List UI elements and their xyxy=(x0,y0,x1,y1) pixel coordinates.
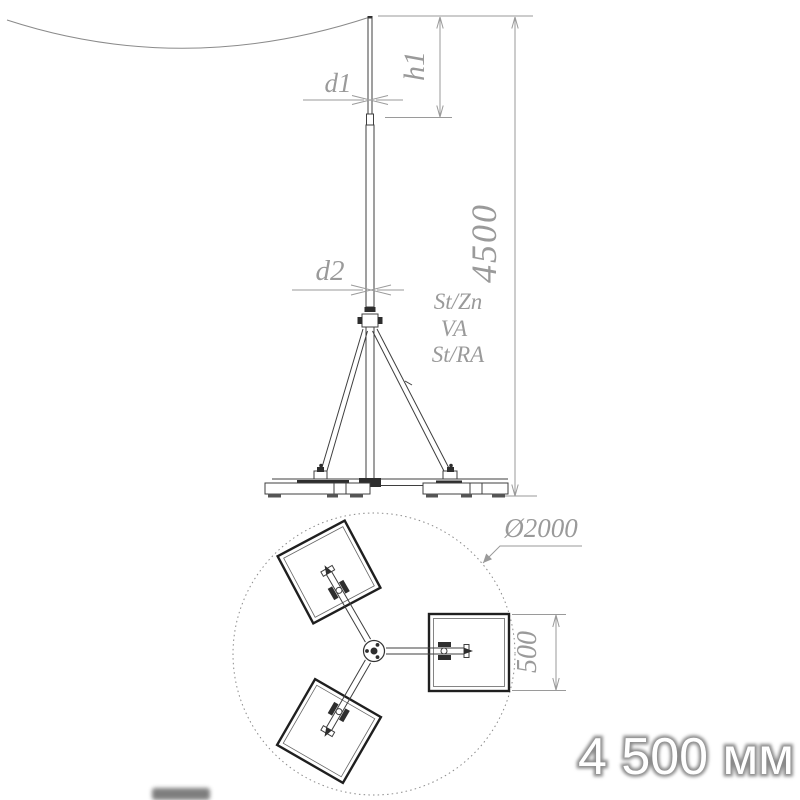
hub-center-bolt xyxy=(371,648,378,655)
ballast-tray-right xyxy=(423,483,508,494)
collar-hinge-right xyxy=(378,317,383,324)
leg-foot-left-bolt xyxy=(317,467,324,472)
leg-foot-left xyxy=(314,471,327,479)
side-view xyxy=(7,16,508,498)
leg-foot-right-bolt xyxy=(447,467,454,472)
technical-drawing-page: h1 4500 d1 d2 St/Zn VA St/RA xyxy=(0,0,800,800)
tray-right-foot-3 xyxy=(492,494,505,498)
arm-right-clamp-top xyxy=(438,642,451,647)
caption-group: 4 500 мм 4 500 мм xyxy=(578,728,794,786)
top-view: Ø2000 500 xyxy=(233,513,582,795)
h1-dimension-line xyxy=(437,17,443,117)
material-option-1: St/Zn xyxy=(434,289,483,314)
tray-left-foot-1 xyxy=(268,494,281,498)
d2-dimension-line xyxy=(292,285,404,295)
mast-sleeve-joint xyxy=(367,114,374,125)
leg-foot-right xyxy=(443,471,457,479)
hub-bolt-3 xyxy=(376,643,380,647)
mast-drawing-svg: h1 4500 d1 d2 St/Zn VA St/RA xyxy=(0,0,800,800)
arm-right-clamp-bottom xyxy=(438,655,451,660)
d1-dimension-label: d1 xyxy=(325,68,352,98)
hub-bolt-2 xyxy=(365,649,369,653)
total-height-dimension-line xyxy=(512,17,518,496)
hub-bolt-1 xyxy=(376,655,380,659)
h1-dimension-label: h1 xyxy=(398,51,431,81)
material-option-3: St/RA xyxy=(432,342,485,367)
caption-text: 4 500 мм xyxy=(578,728,794,786)
tray-right-foot-2 xyxy=(461,494,472,498)
mast-clamp-band xyxy=(365,307,376,312)
tripod-collar xyxy=(362,314,378,327)
tray-left-foot-2 xyxy=(327,494,338,498)
mast-lower-tube xyxy=(366,327,374,482)
plate-size-dimension-label: 500 xyxy=(512,631,543,673)
leg-foot-right-nut xyxy=(449,464,453,468)
tray-right-foot-1 xyxy=(426,494,438,498)
d2-dimension-label: d2 xyxy=(316,255,345,287)
tray-left-foot-3 xyxy=(350,494,363,498)
ballast-tray-left xyxy=(265,483,370,494)
diameter-leader-line xyxy=(483,546,582,563)
collar-hinge-left xyxy=(358,317,363,324)
arm-right-bolt xyxy=(441,648,447,654)
total-height-dimension-label: 4500 xyxy=(464,203,504,283)
mast-upper-tube xyxy=(366,125,374,307)
material-option-2: VA xyxy=(441,316,468,341)
tripod-leg-left xyxy=(320,329,368,476)
diameter-dimension-label: Ø2000 xyxy=(503,513,578,543)
air-terminal-rod xyxy=(368,18,372,117)
plate-size-dimension-line xyxy=(553,615,559,690)
d1-dimension-line xyxy=(303,96,403,105)
watermark-smudge xyxy=(152,788,210,800)
catenary-wire xyxy=(7,17,370,48)
leg-foot-left-nut xyxy=(319,464,323,468)
side-view-dimensions: h1 4500 d1 d2 St/Zn VA St/RA xyxy=(292,16,537,496)
center-hub xyxy=(364,641,385,662)
